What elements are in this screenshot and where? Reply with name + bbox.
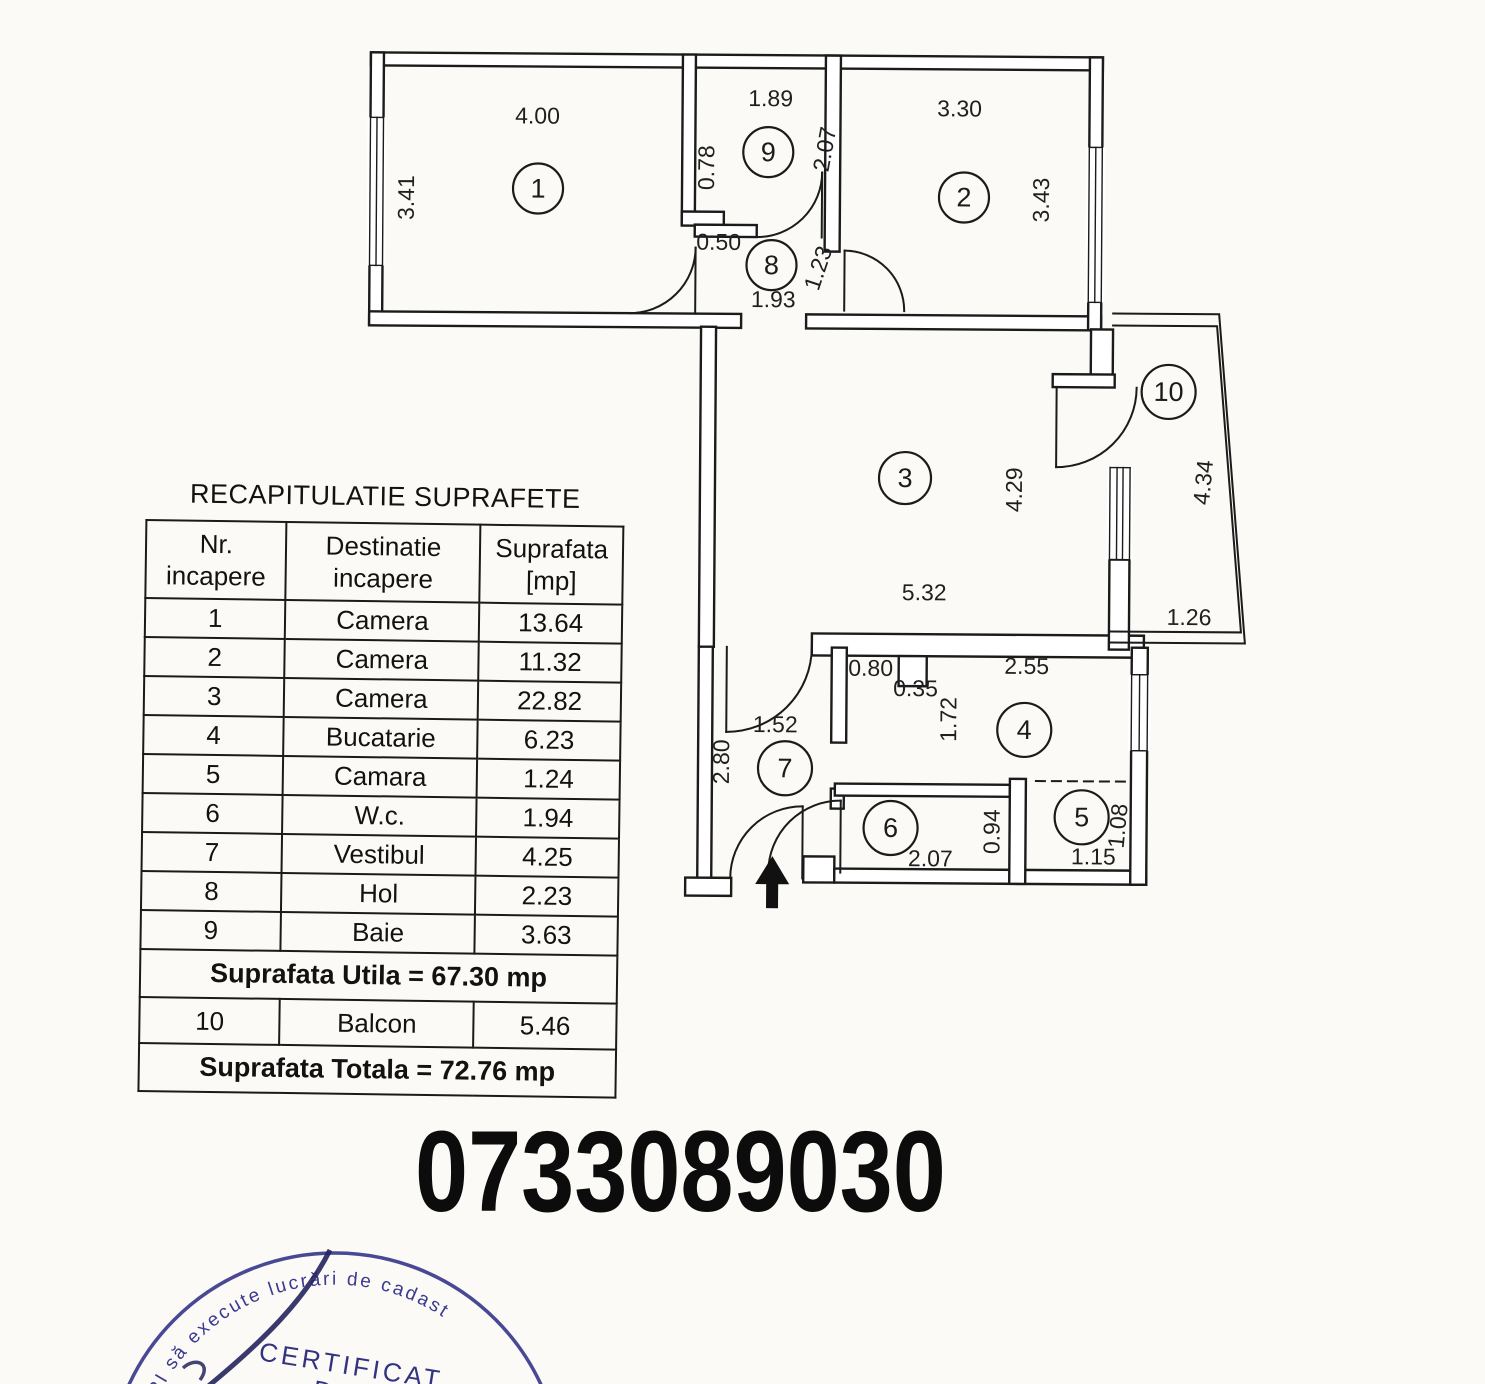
dim-label: 2.55 (1004, 653, 1049, 679)
total-utila-row: Suprafata Utila = 67.30 mp (140, 949, 618, 1004)
table-row: 4 Bucatarie 6.23 (143, 715, 620, 761)
stamp: rizată de ANCPI să execute lucrări de ca… (108, 1250, 562, 1384)
cell-dest: Camera (285, 639, 479, 681)
cell-mp: 5.46 (473, 1002, 616, 1050)
room-label-10: 10 (1141, 365, 1195, 419)
total-utila: Suprafata Utila = 67.30 mp (140, 949, 618, 1004)
cell-mp: 13.64 (479, 603, 622, 644)
svg-text:8: 8 (764, 250, 779, 280)
cell-dest: W.c. (282, 795, 476, 837)
cell-nr: 2 (144, 637, 285, 678)
dim-label: 1.89 (748, 85, 793, 111)
header-line: Destinatie (325, 530, 441, 562)
table-row: 9 Baie 3.63 (140, 910, 617, 956)
dim-label: 0.35 (893, 675, 938, 701)
entrance-arrow-icon (755, 856, 789, 908)
svg-text:3: 3 (897, 463, 912, 493)
header-destinatie: Destinatie incapere (286, 522, 481, 603)
header-nr: Nr. incapere (145, 520, 287, 600)
room-label-3: 3 (879, 452, 931, 504)
svg-text:9: 9 (761, 137, 776, 167)
cell-nr: 1 (145, 598, 286, 639)
cell-mp: 3.63 (475, 915, 618, 956)
cell-nr: 6 (142, 793, 283, 834)
cell-dest: Camara (283, 756, 477, 798)
table-header-row: Nr. incapere Destinatie incapere Suprafa… (145, 520, 623, 605)
dim-label: 0.80 (848, 655, 893, 681)
dim-label: 1.26 (1167, 604, 1212, 630)
svg-text:1: 1 (530, 173, 545, 203)
dim-label: 0.94 (978, 809, 1004, 854)
room-label-1: 1 (513, 163, 563, 213)
cell-dest: Baie (281, 912, 475, 954)
cell-mp: 6.23 (477, 720, 620, 761)
dim-label: 3.41 (393, 175, 419, 220)
cell-mp: 11.32 (479, 642, 622, 683)
cell-mp: 2.23 (475, 876, 618, 917)
header-line: [mp] (526, 565, 577, 596)
dashed-divider (1036, 781, 1128, 782)
svg-text:4: 4 (1017, 715, 1032, 745)
stamp-title: CERTIFICAT (257, 1336, 445, 1384)
cell-mp: 1.24 (477, 759, 620, 800)
room-label-2: 2 (939, 172, 989, 222)
header-line: Suprafata (495, 532, 608, 564)
phone-number: 0733089030 (415, 1112, 946, 1233)
room-label-5: 5 (1054, 790, 1108, 844)
table-row: 3 Camera 22.82 (144, 676, 621, 722)
dim-label: 3.43 (1028, 178, 1054, 223)
table-title: RECAPITULATIE SUPRAFETE (146, 478, 625, 516)
header-line: incapere (333, 563, 433, 594)
cell-nr: 3 (144, 676, 285, 717)
svg-text:2: 2 (956, 182, 971, 212)
room-label-9: 9 (743, 127, 793, 177)
svg-text:5: 5 (1074, 802, 1089, 832)
cell-nr: 7 (142, 832, 283, 873)
cell-dest: Bucatarie (284, 717, 478, 759)
cell-nr: 9 (140, 910, 281, 951)
table-row: 5 Camara 1.24 (143, 754, 620, 800)
cell-dest: Camera (285, 600, 479, 642)
table-row: 1 Camera 13.64 (145, 598, 622, 644)
cell-dest: Balcon (280, 999, 475, 1048)
header-line: incapere (166, 560, 266, 591)
table-row: 10 Balcon 5.46 (139, 997, 617, 1050)
cell-nr: 8 (141, 871, 282, 912)
header-line: Nr. (199, 528, 233, 558)
room-label-4: 4 (997, 703, 1051, 757)
svg-text:6: 6 (883, 813, 898, 843)
dim-label: 1.52 (753, 711, 798, 737)
dim-label: 0.50 (696, 229, 741, 255)
header-suprafata: Suprafata [mp] (480, 525, 624, 605)
dim-label: 1.23 (798, 243, 837, 294)
cell-nr: 5 (143, 754, 284, 795)
cell-mp: 22.82 (478, 681, 621, 722)
table-row: 2 Camera 11.32 (144, 637, 621, 683)
signature-stroke-small (183, 1362, 204, 1380)
dim-label: 2.80 (708, 739, 734, 784)
dim-label: 1.93 (751, 286, 796, 312)
dim-label: 4.29 (1001, 467, 1027, 512)
cell-nr: 4 (143, 715, 284, 756)
dim-label: 4.34 (1188, 459, 1218, 506)
cell-dest: Camera (284, 678, 478, 720)
svg-text:10: 10 (1153, 377, 1183, 407)
surface-recap: RECAPITULATIE SUPRAFETE Nr. incapere Des… (137, 478, 625, 1099)
cell-dest: Hol (281, 873, 475, 915)
total-totala-row: Suprafata Totala = 72.76 mp (138, 1043, 616, 1098)
room-label-8: 8 (746, 240, 796, 290)
dim-label: 3.30 (937, 95, 982, 121)
cell-mp: 1.94 (476, 798, 619, 839)
cell-nr: 10 (139, 997, 280, 1045)
dim-label: 2.07 (908, 845, 953, 871)
dim-label: 1.08 (1103, 802, 1133, 849)
recap-table: Nr. incapere Destinatie incapere Suprafa… (137, 519, 624, 1099)
dim-label: 1.72 (935, 697, 961, 742)
cell-dest: Vestibul (282, 834, 476, 876)
table-row: 7 Vestibul 4.25 (142, 832, 619, 878)
table-row: 8 Hol 2.23 (141, 871, 618, 917)
dim-label: 5.32 (902, 579, 947, 605)
svg-text:7: 7 (777, 753, 792, 783)
dim-label: 4.00 (515, 102, 560, 128)
table-row: 6 W.c. 1.94 (142, 793, 619, 839)
dim-label: 0.78 (693, 145, 719, 190)
total-totala: Suprafata Totala = 72.76 mp (138, 1043, 616, 1098)
cell-mp: 4.25 (476, 837, 619, 878)
room-label-7: 7 (758, 741, 812, 795)
scanned-floorplan-page: { "table": { "title": "RECAPITULATIE SUP… (0, 0, 1485, 1384)
